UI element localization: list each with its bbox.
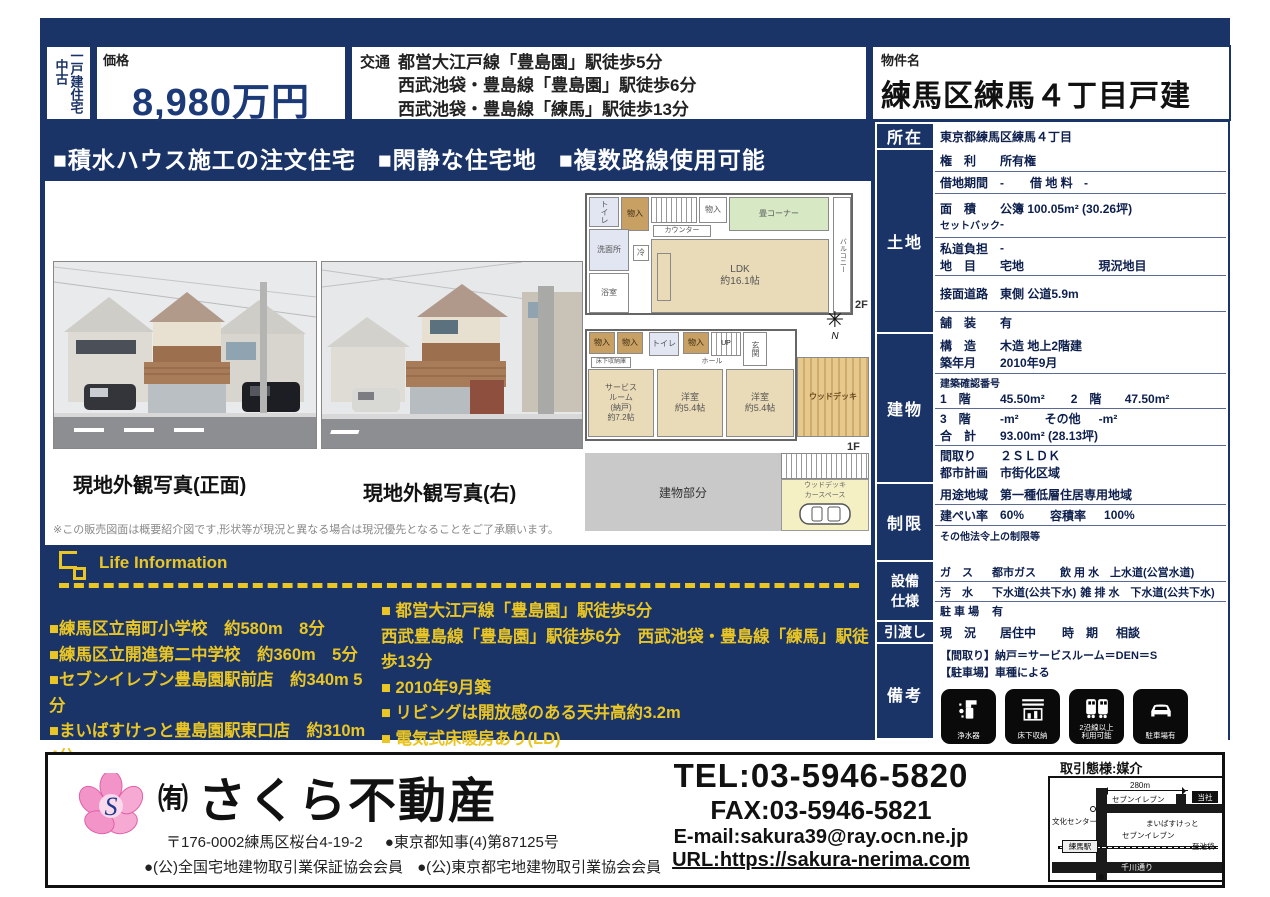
photo-front-illustration xyxy=(54,262,316,448)
company-address-row: 〒176-0002練馬区桜台4-19-2 ●東京都知事(4)第87125号 xyxy=(166,831,559,852)
map-building-mark xyxy=(1176,794,1186,804)
floor-label-2f: 2F xyxy=(855,299,868,311)
spec-section-delivery: 引渡し 現 況居住中 時 期相談 xyxy=(877,622,1226,644)
fridge-2f: 冷 xyxy=(633,245,649,261)
room-ldk: LDK 約16.1帖 xyxy=(651,239,829,313)
company-prefix: ㈲ xyxy=(158,774,188,818)
property-photo-right xyxy=(321,261,583,449)
stairs-up-1f: UP xyxy=(711,332,741,356)
room-tatami-corner: 畳コーナー xyxy=(729,197,829,231)
compass-north-icon: ✳ N xyxy=(815,309,855,342)
entrance-1f: 玄関 xyxy=(743,332,767,366)
toilet-1f: トイレ xyxy=(649,332,679,356)
underfloor-storage-badge: 床下収納 xyxy=(1005,689,1060,744)
room-closet2-2f: 物入 xyxy=(699,197,727,223)
category-type: 一戸建住宅 xyxy=(70,49,83,117)
train-lines-icon xyxy=(1084,697,1110,723)
plan-disclaimer: ※この販売図面は概要紹介図です,形状等が現況と異なる場合は現況優先となることをご… xyxy=(53,521,559,537)
closet3-1f: 物入 xyxy=(683,332,709,354)
spec-label-delivery: 引渡し xyxy=(877,622,935,642)
fax-number: FAX:03-5946-5821 xyxy=(603,795,1039,826)
room-bath-2f: 浴室 xyxy=(589,273,629,313)
access-line-2: 西武池袋・豊島線「豊島園」駅徒歩6分 xyxy=(398,74,696,97)
our-office-label: 当社 xyxy=(1192,791,1218,803)
closet1-1f: 物入 xyxy=(589,332,615,354)
site-deck-label: ウッドデッキ xyxy=(782,480,868,490)
access-line-3: 西武池袋・豊島線「練馬」駅徒歩13分 xyxy=(398,98,696,121)
spec-section-notes: 備考 【間取り】納戸＝サービスルーム＝DEN＝S 【駐車場】車種による 浄水器 xyxy=(877,644,1226,744)
parking-row: 駐 車 場有 xyxy=(935,602,1226,620)
flyer-page: 一戸建住宅 中古 価格 8,980万円 交通 都営大江戸線「豊島園」駅徒歩5分 … xyxy=(0,0,1270,897)
company-membership-row: ●(公)全国宅地建物取引業保証協会会員 ●(公)東京都宅地建物取引業協会会員 xyxy=(144,856,661,877)
feature-item-1: ■積水ハウス施工の注文住宅 xyxy=(53,141,356,175)
balcony-2f: バルコニー xyxy=(833,197,851,313)
email-address: E-mail:sakura39@ray.ocn.ne.jp xyxy=(603,826,1039,849)
land-right-row: 権 利所有権 xyxy=(935,150,1226,172)
company-address: 〒176-0002練馬区桜台4-19-2 xyxy=(166,831,363,852)
closet2-1f: 物入 xyxy=(617,332,643,354)
photo-right-illustration xyxy=(322,262,582,448)
building-layout-row: 間取り２ＳＬＤＫ 都市計画市街化区域 xyxy=(935,446,1226,482)
spec-section-facilities: 設備 仕様 ガ ス都市ガス 飲 用 水上水道(公営水道) 汚 水下水道(公共下水… xyxy=(877,562,1226,622)
photo-caption-front: 現地外観写真(正面) xyxy=(73,469,246,498)
land-road-burden-row: 私道負担- 地 目宅地現況地目 xyxy=(935,238,1226,276)
other-restrictions-row: その他法令上の制限等 xyxy=(935,526,1226,560)
car-top-view-icon xyxy=(798,501,852,527)
parking-badge: 駐車場有 xyxy=(1133,689,1188,744)
traffic-signal-icon xyxy=(1090,806,1096,812)
room-toilet-2f: トイレ xyxy=(589,197,619,227)
life-item: ■ 都営大江戸線「豊島園」駅徒歩5分 xyxy=(381,599,871,625)
spec-section-building: 建物 構 造木造 地上2階建 築年月2010年9月 建築確認番号 1 階45.5… xyxy=(877,334,1226,484)
membership-1: ●(公)全国宅地建物取引業保証協会会員 xyxy=(144,856,403,877)
western-room-2: 洋室 約5.4帖 xyxy=(726,369,794,437)
land-lease-row: 借地期間- 借 地 料- xyxy=(935,172,1226,194)
map-scale-line xyxy=(1102,790,1188,791)
kitchen-counter-2f xyxy=(657,253,671,301)
floorplan-2f: トイレ 物入 物入 畳コーナー カウンター 洗面所 浴室 LDK 約16.1帖 … xyxy=(585,193,853,315)
spec-table: 所在 東京都練馬区練馬４丁目 土地 権 利所有権 借地期間- 借 地 料- 面 … xyxy=(875,122,1228,740)
seven-eleven-label-2: セブンイレブン xyxy=(1122,830,1175,841)
life-item: 西武豊島線「豊島園」駅徒歩6分 西武池袋・豊島線「練馬」駅徒歩13分 xyxy=(381,625,871,676)
stairs-2f xyxy=(651,197,697,223)
access-box: 交通 都営大江戸線「豊島園」駅徒歩5分 西武池袋・豊島線「豊島園」駅徒歩6分 西… xyxy=(350,45,868,121)
site-car-label: カースペース xyxy=(782,490,868,500)
western-room-1: 洋室 約5.4帖 xyxy=(657,369,723,437)
access-map: 280m 千川通り 練馬駅 至池袋 セブンイレブン 当社 文化センター まいばす… xyxy=(1048,776,1224,882)
life-item: ■ 2010年9月築 xyxy=(381,676,871,702)
parking-car-icon xyxy=(1147,697,1175,723)
category-used: 中古 xyxy=(55,59,68,117)
nerima-station-label: 練馬駅 xyxy=(1062,840,1098,853)
life-item: ■ 電気式床暖房あり(LD) xyxy=(381,727,871,753)
map-road-horizontal xyxy=(1096,804,1222,813)
flyer-body: 一戸建住宅 中古 価格 8,980万円 交通 都営大江戸線「豊島園」駅徒歩5分 … xyxy=(40,18,1230,740)
life-item: ■ リビングは開放感のある天井高約3.2m xyxy=(381,701,871,727)
property-name: 練馬区練馬４丁目戸建 xyxy=(881,71,1221,115)
feature-icons: 浄水器 床下収納 xyxy=(935,681,1226,744)
spec-label-location: 所在 xyxy=(877,124,935,148)
category-box: 一戸建住宅 中古 xyxy=(45,45,92,121)
life-list-left: ■練馬区立南町小学校 約580m 8分 ■練馬区立開進第二中学校 約360m 5… xyxy=(45,591,375,778)
property-photo-front xyxy=(53,261,317,449)
price-box: 価格 8,980万円 xyxy=(95,45,347,121)
land-area-row: 面 積公簿 100.05m² (30.26坪) セットバック- xyxy=(935,194,1226,238)
photo-floorplan-panel: 現地外観写真(正面) 現地外観写真(右) ※この販売図面は概要紹介図です,形状等… xyxy=(45,181,871,545)
life-item: ■セブンイレブン豊島園駅前店 約340m 5分 xyxy=(49,668,375,719)
access-label: 交通 xyxy=(360,51,390,115)
phone-number: TEL:03-5946-5820 xyxy=(603,757,1039,795)
company-footer: S ㈲ さくら不動産 〒176-0002練馬区桜台4-19-2 ●東京都知事(4… xyxy=(45,752,1225,888)
notes-line-1: 【間取り】納戸＝サービスルーム＝DEN＝S xyxy=(935,644,1226,665)
company-name-row: ㈲ さくら不動産 xyxy=(158,761,498,831)
company-name: さくら不動産 xyxy=(198,761,498,831)
transaction-type: 取引態様:媒介 xyxy=(1060,758,1142,777)
life-item: ■練馬区立南町小学校 約580m 8分 xyxy=(49,617,375,643)
map-scale-label: 280m xyxy=(1130,781,1150,790)
spec-label-restrictions: 制限 xyxy=(877,484,935,560)
life-information-title: Life Information xyxy=(99,553,227,573)
spec-label-land: 土地 xyxy=(877,150,935,332)
price-value: 8,980万円 xyxy=(103,71,339,126)
spec-label-building: 建物 xyxy=(877,334,935,482)
floorplan-1f: 物入 物入 トイレ 物入 UP 玄関 ホール 床下収納庫 サービス ルーム (納… xyxy=(585,329,869,441)
photo-caption-right: 現地外観写真(右) xyxy=(363,477,516,506)
delivery-row: 現 況居住中 時 期相談 xyxy=(935,622,1226,642)
spec-label-facilities: 設備 仕様 xyxy=(877,562,935,620)
building-confirm-row: 建築確認番号 1 階45.50m²2 階47.50m² xyxy=(935,374,1226,409)
feature-banner: ■積水ハウス施工の注文住宅 ■閑静な住宅地 ■複数路線使用可能 xyxy=(45,138,871,178)
maibasuketto-label: まいばすけっと xyxy=(1146,818,1199,829)
hall-1f: ホール xyxy=(683,356,741,368)
zoning-row: 用途地域第一種低層住居専用地域 xyxy=(935,484,1226,505)
to-ikebukuro-label: 至池袋 xyxy=(1192,841,1215,852)
feature-item-2: ■閑静な住宅地 xyxy=(378,141,537,175)
senkawa-street-label: 千川通り xyxy=(1121,862,1153,873)
spec-section-location: 所在 東京都練馬区練馬４丁目 xyxy=(877,124,1226,150)
service-room: サービス ルーム (納戸) 約7.2帖 xyxy=(588,369,654,437)
land-pavement-row: 舗 装有 xyxy=(935,312,1226,332)
wood-deck-1f: ウッドデッキ xyxy=(797,357,869,437)
building-floors-row: 3 階-m²その他-m² 合 計93.00m² (28.13坪) xyxy=(935,409,1226,446)
culture-center-label: 文化センター xyxy=(1052,816,1097,827)
land-frontage-row: 接面道路東側 公道5.9m xyxy=(935,276,1226,312)
property-name-label: 物件名 xyxy=(881,50,1221,69)
room-washroom-2f: 洗面所 xyxy=(589,229,629,271)
traffic-signal-icon xyxy=(1098,874,1104,880)
dashed-divider xyxy=(59,583,859,588)
company-license: ●東京都知事(4)第87125号 xyxy=(385,831,559,852)
floor-label-1f: 1F xyxy=(847,441,860,453)
spec-label-notes: 備考 xyxy=(877,644,935,744)
notes-line-2: 【駐車場】車種による xyxy=(935,665,1226,682)
room-closet-2f: 物入 xyxy=(621,197,649,231)
life-list-right: ■ 都営大江戸線「豊島園」駅徒歩5分 西武豊島線「豊島園」駅徒歩6分 西武池袋・… xyxy=(375,591,871,778)
property-name-box: 物件名 練馬区練馬４丁目戸建 xyxy=(871,45,1231,121)
water-purifier-icon xyxy=(956,697,982,723)
bracket-decoration-icon xyxy=(59,551,93,585)
gas-water-row: ガ ス都市ガス 飲 用 水上水道(公営水道) xyxy=(935,562,1226,582)
contact-block: TEL:03-5946-5820 FAX:03-5946-5821 E-mail… xyxy=(603,757,1039,872)
car-space: ウッドデッキ カースペース xyxy=(781,479,869,531)
feature-item-3: ■複数路線使用可能 xyxy=(559,141,766,175)
seven-eleven-label-1: セブンイレブン xyxy=(1112,794,1165,805)
sakura-logo: S xyxy=(78,773,144,839)
site-plan: 建物部分 ウッドデッキ カースペース xyxy=(585,453,869,531)
spec-section-land: 土地 権 利所有権 借地期間- 借 地 料- 面 積公簿 100.05m² (3… xyxy=(877,150,1226,334)
sewage-row: 汚 水下水道(公共下水) 雑 排 水下水道(公共下水) xyxy=(935,582,1226,602)
underfloor-storage-icon xyxy=(1020,697,1046,723)
building-footprint: 建物部分 xyxy=(585,453,781,531)
price-label: 価格 xyxy=(103,50,339,69)
building-structure-row: 構 造木造 地上2階建 築年月2010年9月 xyxy=(935,334,1226,374)
life-information: Life Information ■練馬区立南町小学校 約580m 8分 ■練馬… xyxy=(45,545,871,740)
coverage-row: 建ぺい率60% 容積率100% xyxy=(935,505,1226,526)
access-line-1: 都営大江戸線「豊島園」駅徒歩5分 xyxy=(398,51,696,74)
multiple-lines-badge: 2沿線以上 利用可能 xyxy=(1069,689,1124,744)
water-purifier-badge: 浄水器 xyxy=(941,689,996,744)
website-url: URL:https://sakura-nerima.com xyxy=(603,849,1039,872)
life-item: ■練馬区立開進第二中学校 約360m 5分 xyxy=(49,643,375,669)
underfloor-storage: 床下収納庫 xyxy=(591,357,631,368)
site-stairs xyxy=(781,453,869,479)
svg-text:S: S xyxy=(105,792,118,821)
spec-section-restrictions: 制限 用途地域第一種低層住居専用地域 建ぺい率60% 容積率100% その他法令… xyxy=(877,484,1226,562)
counter-label: カウンター xyxy=(653,225,711,237)
map-road-senkawa: 千川通り xyxy=(1052,862,1222,873)
location-value: 東京都練馬区練馬４丁目 xyxy=(935,124,1226,148)
